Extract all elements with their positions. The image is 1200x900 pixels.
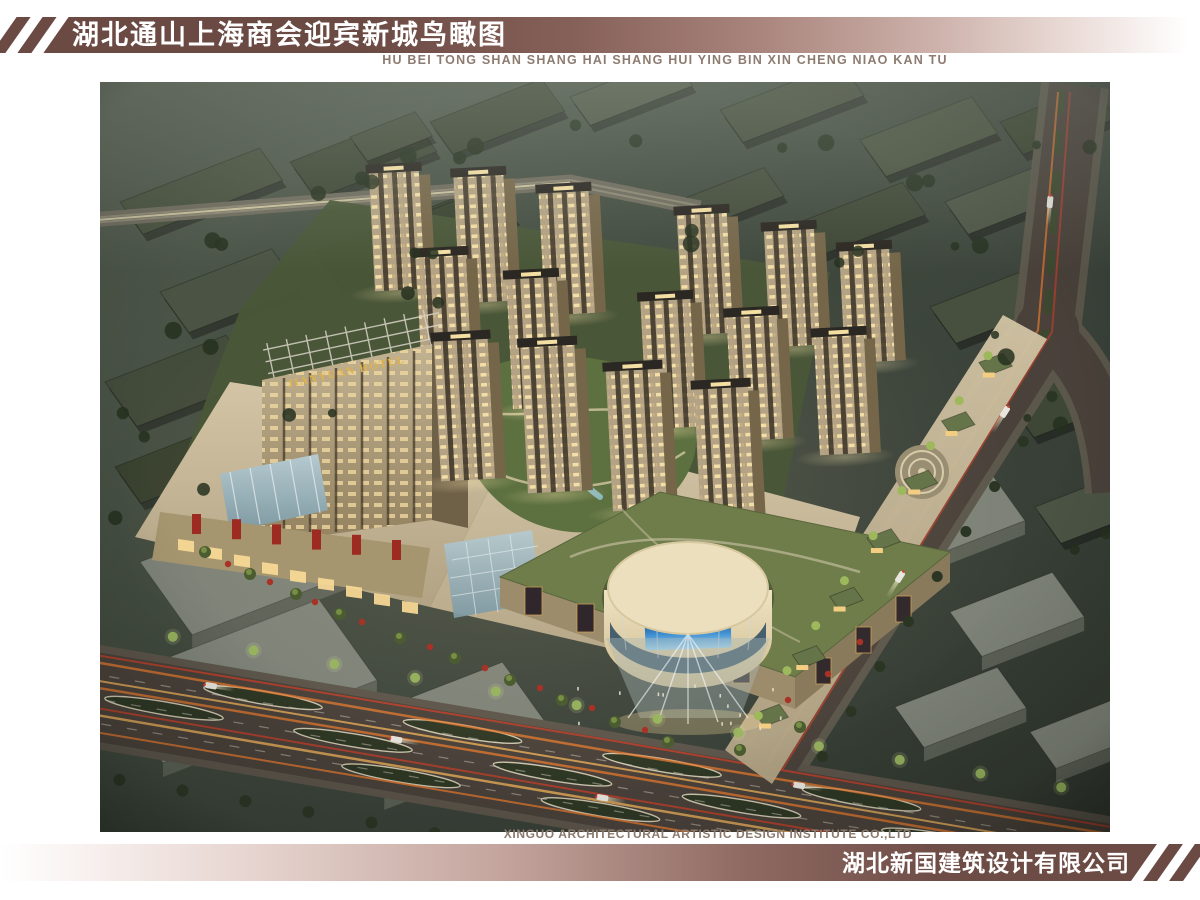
design-credit: XINGUO ARCHITECTURAL ARTISTIC DESIGN INS…	[408, 827, 1008, 841]
diagonal-stripes-icon	[1110, 844, 1200, 881]
page-subtitle-pinyin: HU BEI TONG SHAN SHANG HAI SHANG HUI YIN…	[365, 53, 965, 67]
company-name: 湖北新国建筑设计有限公司	[842, 844, 1130, 881]
vignette-overlay	[100, 82, 1110, 832]
page-title: 湖北通山上海商会迎宾新城鸟瞰图	[72, 17, 507, 53]
aerial-rendering: JIANYUAN HOTEL	[100, 82, 1110, 832]
presentation-board: 湖北通山上海商会迎宾新城鸟瞰图 HU BEI TONG SHAN SHANG H…	[0, 0, 1200, 900]
